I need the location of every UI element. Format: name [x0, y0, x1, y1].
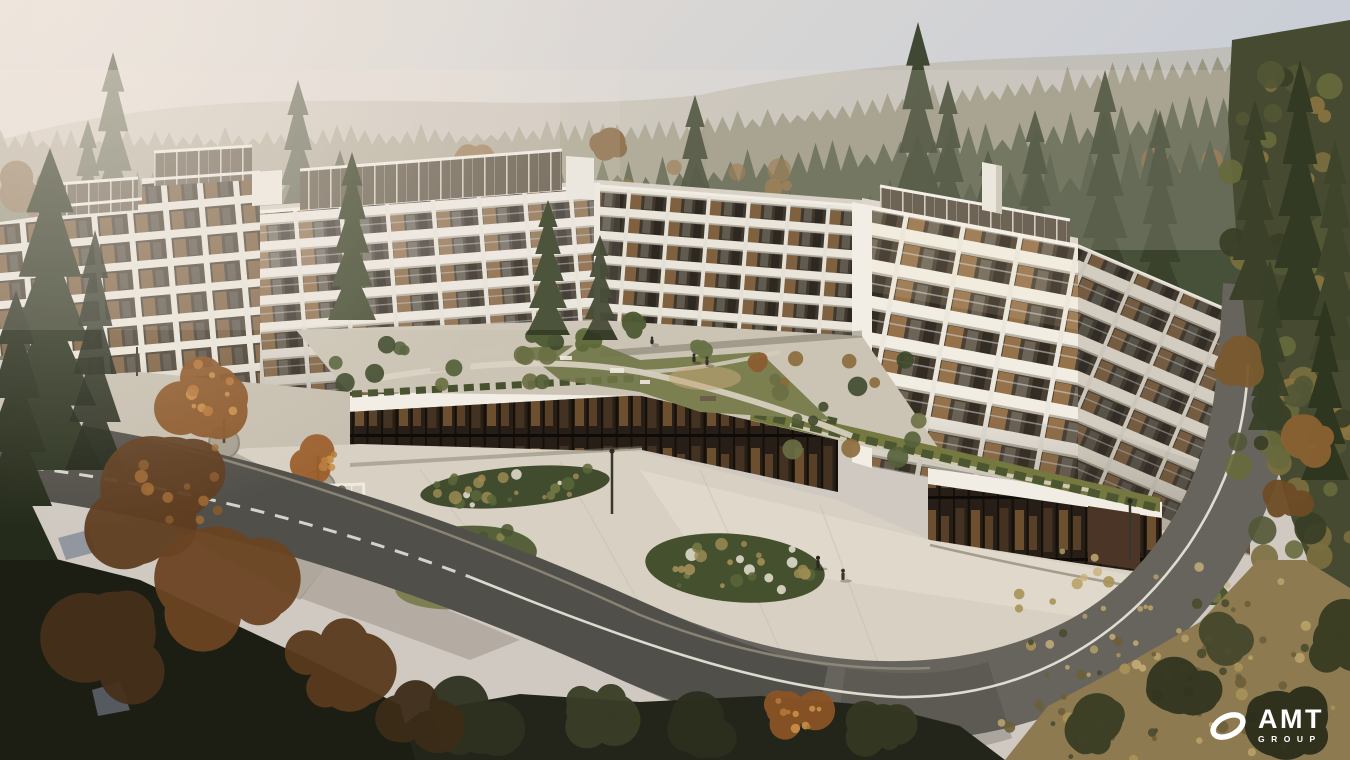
logo-ellipse-icon — [1207, 708, 1249, 744]
rooftop-stack-shade — [996, 165, 1002, 214]
amt-logo: AMT GROUP — [1207, 708, 1324, 744]
architectural-render: AMT GROUP — [0, 0, 1350, 760]
lamppost-head — [609, 448, 614, 453]
logo-sub: GROUP — [1258, 734, 1324, 744]
lamppost-head — [1127, 498, 1132, 503]
logo-brand: AMT — [1258, 708, 1324, 731]
left-haze-veil — [0, 0, 620, 330]
logo-text-block: AMT GROUP — [1258, 708, 1324, 744]
scene-svg — [0, 0, 1350, 760]
